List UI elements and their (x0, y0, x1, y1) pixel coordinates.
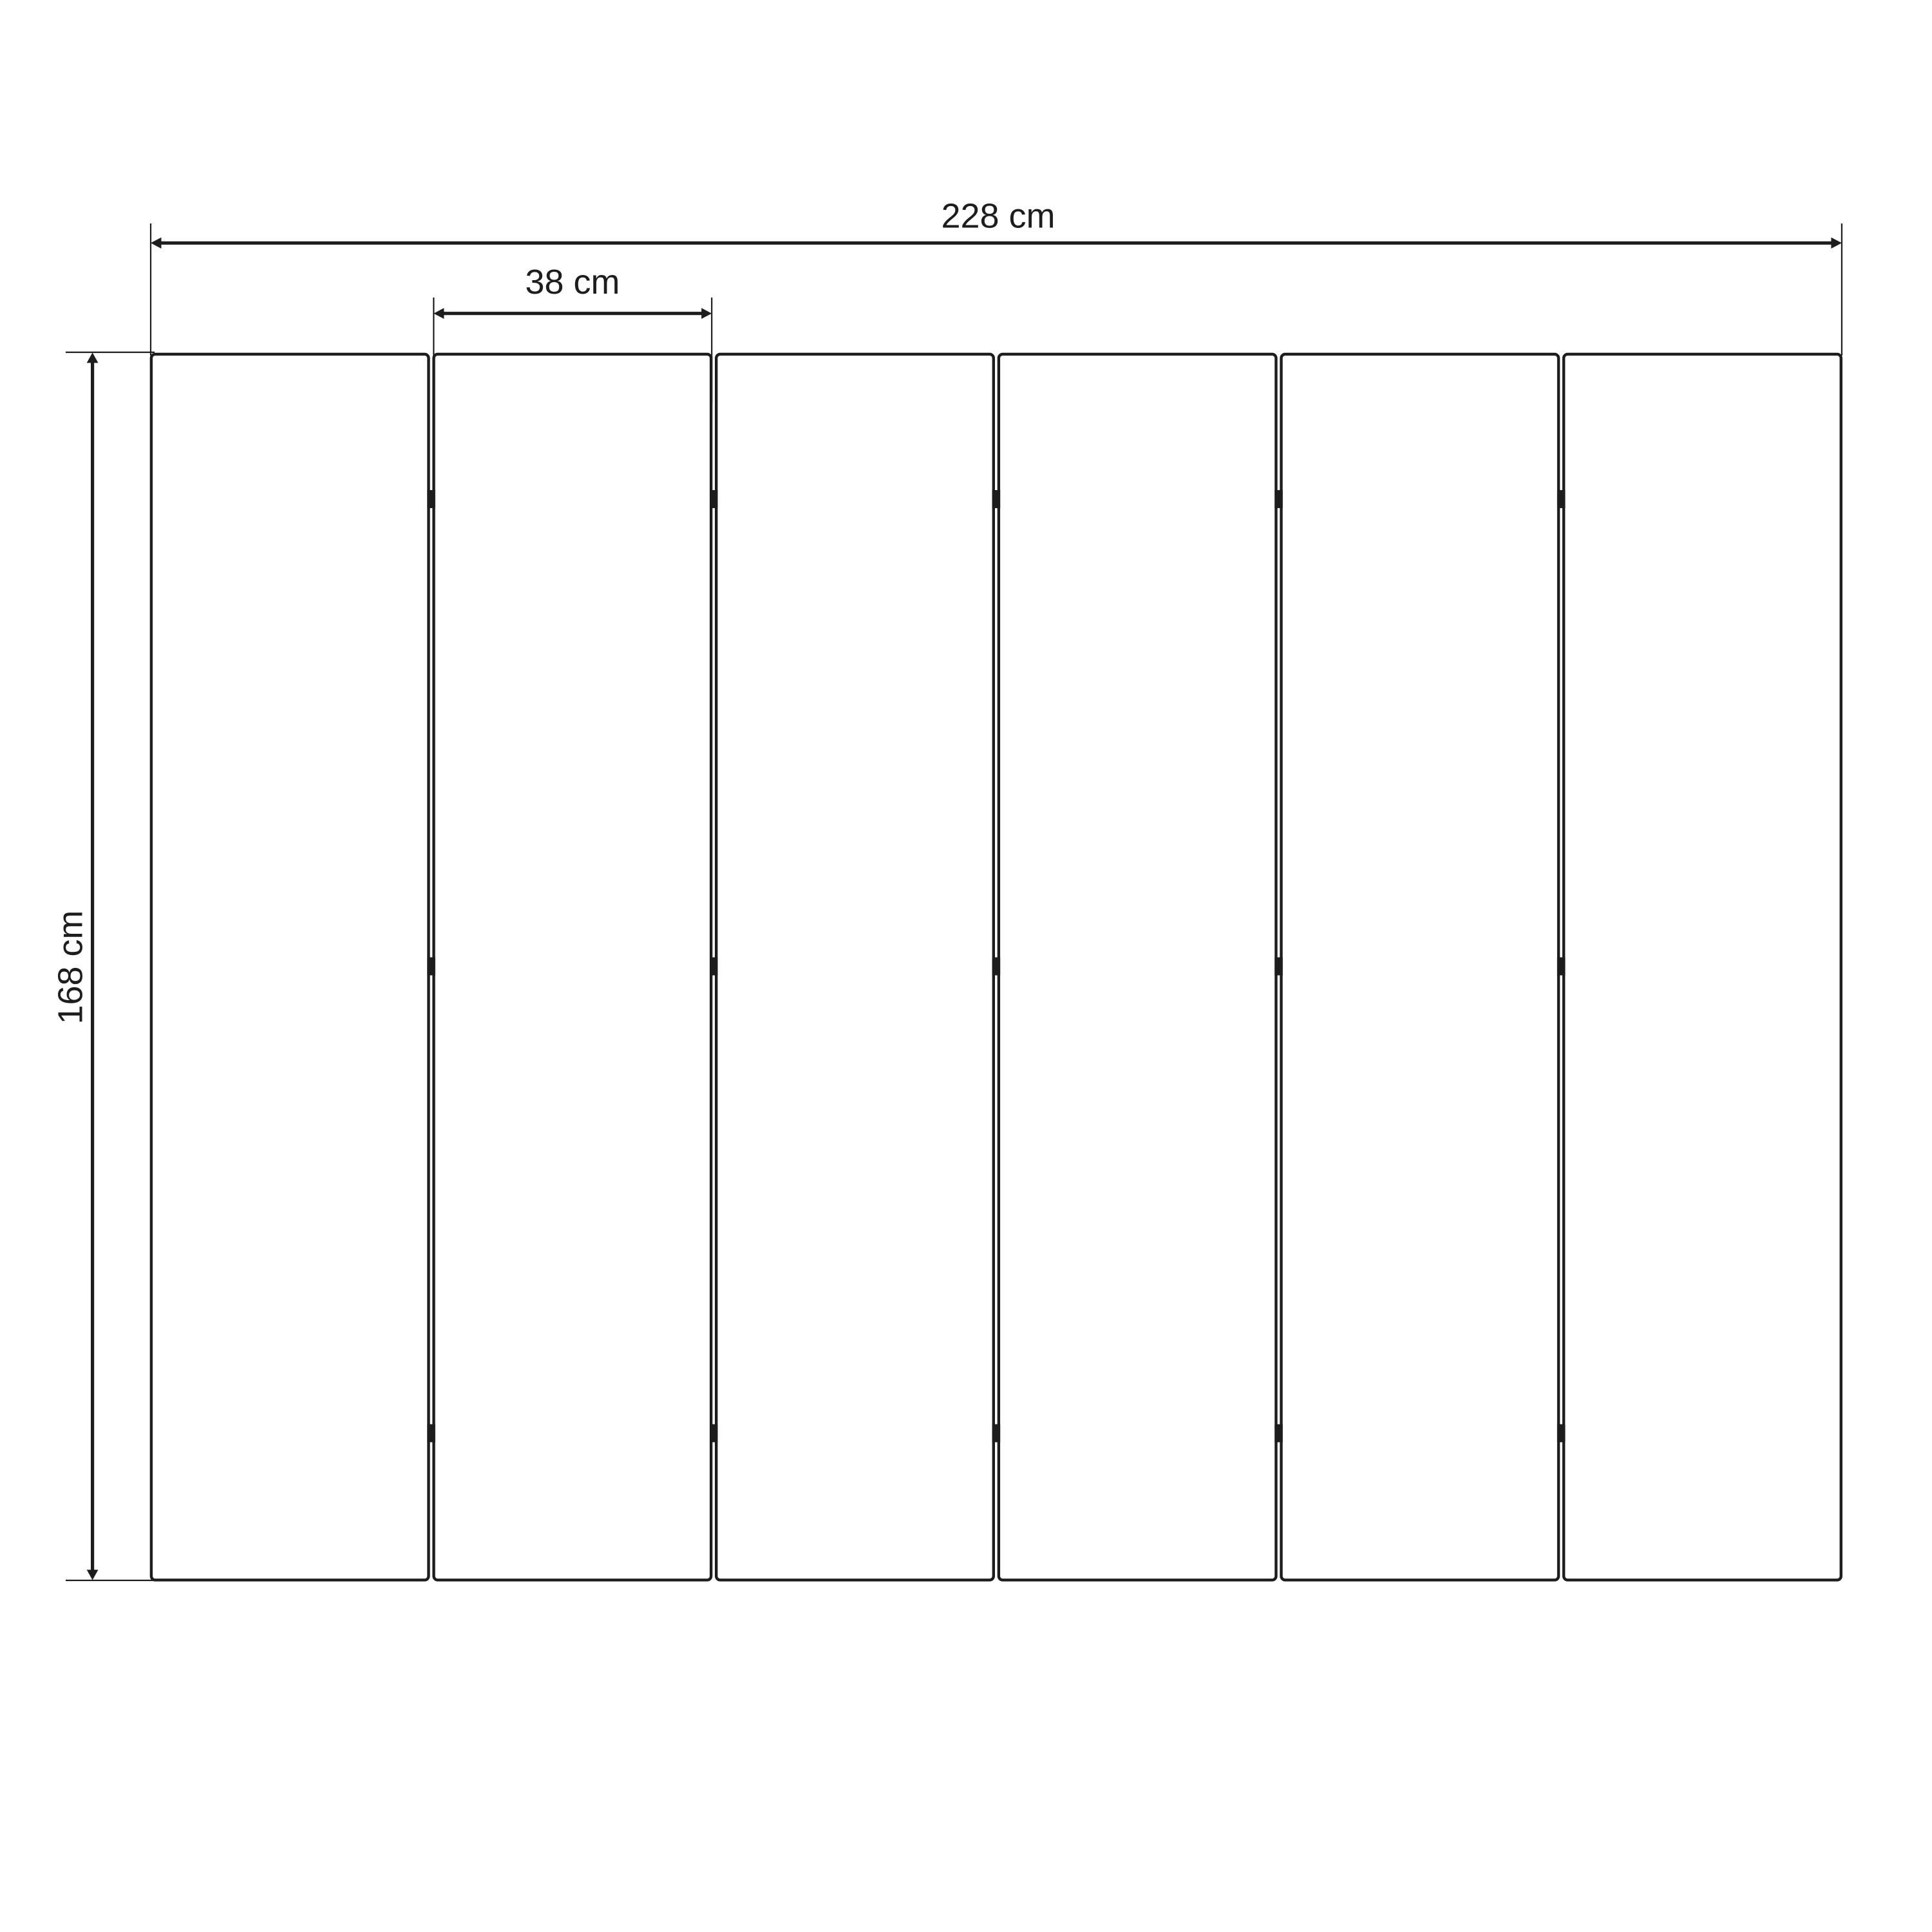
svg-text:168 cm: 168 cm (52, 910, 90, 1024)
svg-text:38 cm: 38 cm (525, 263, 620, 301)
svg-text:228 cm: 228 cm (941, 197, 1055, 236)
